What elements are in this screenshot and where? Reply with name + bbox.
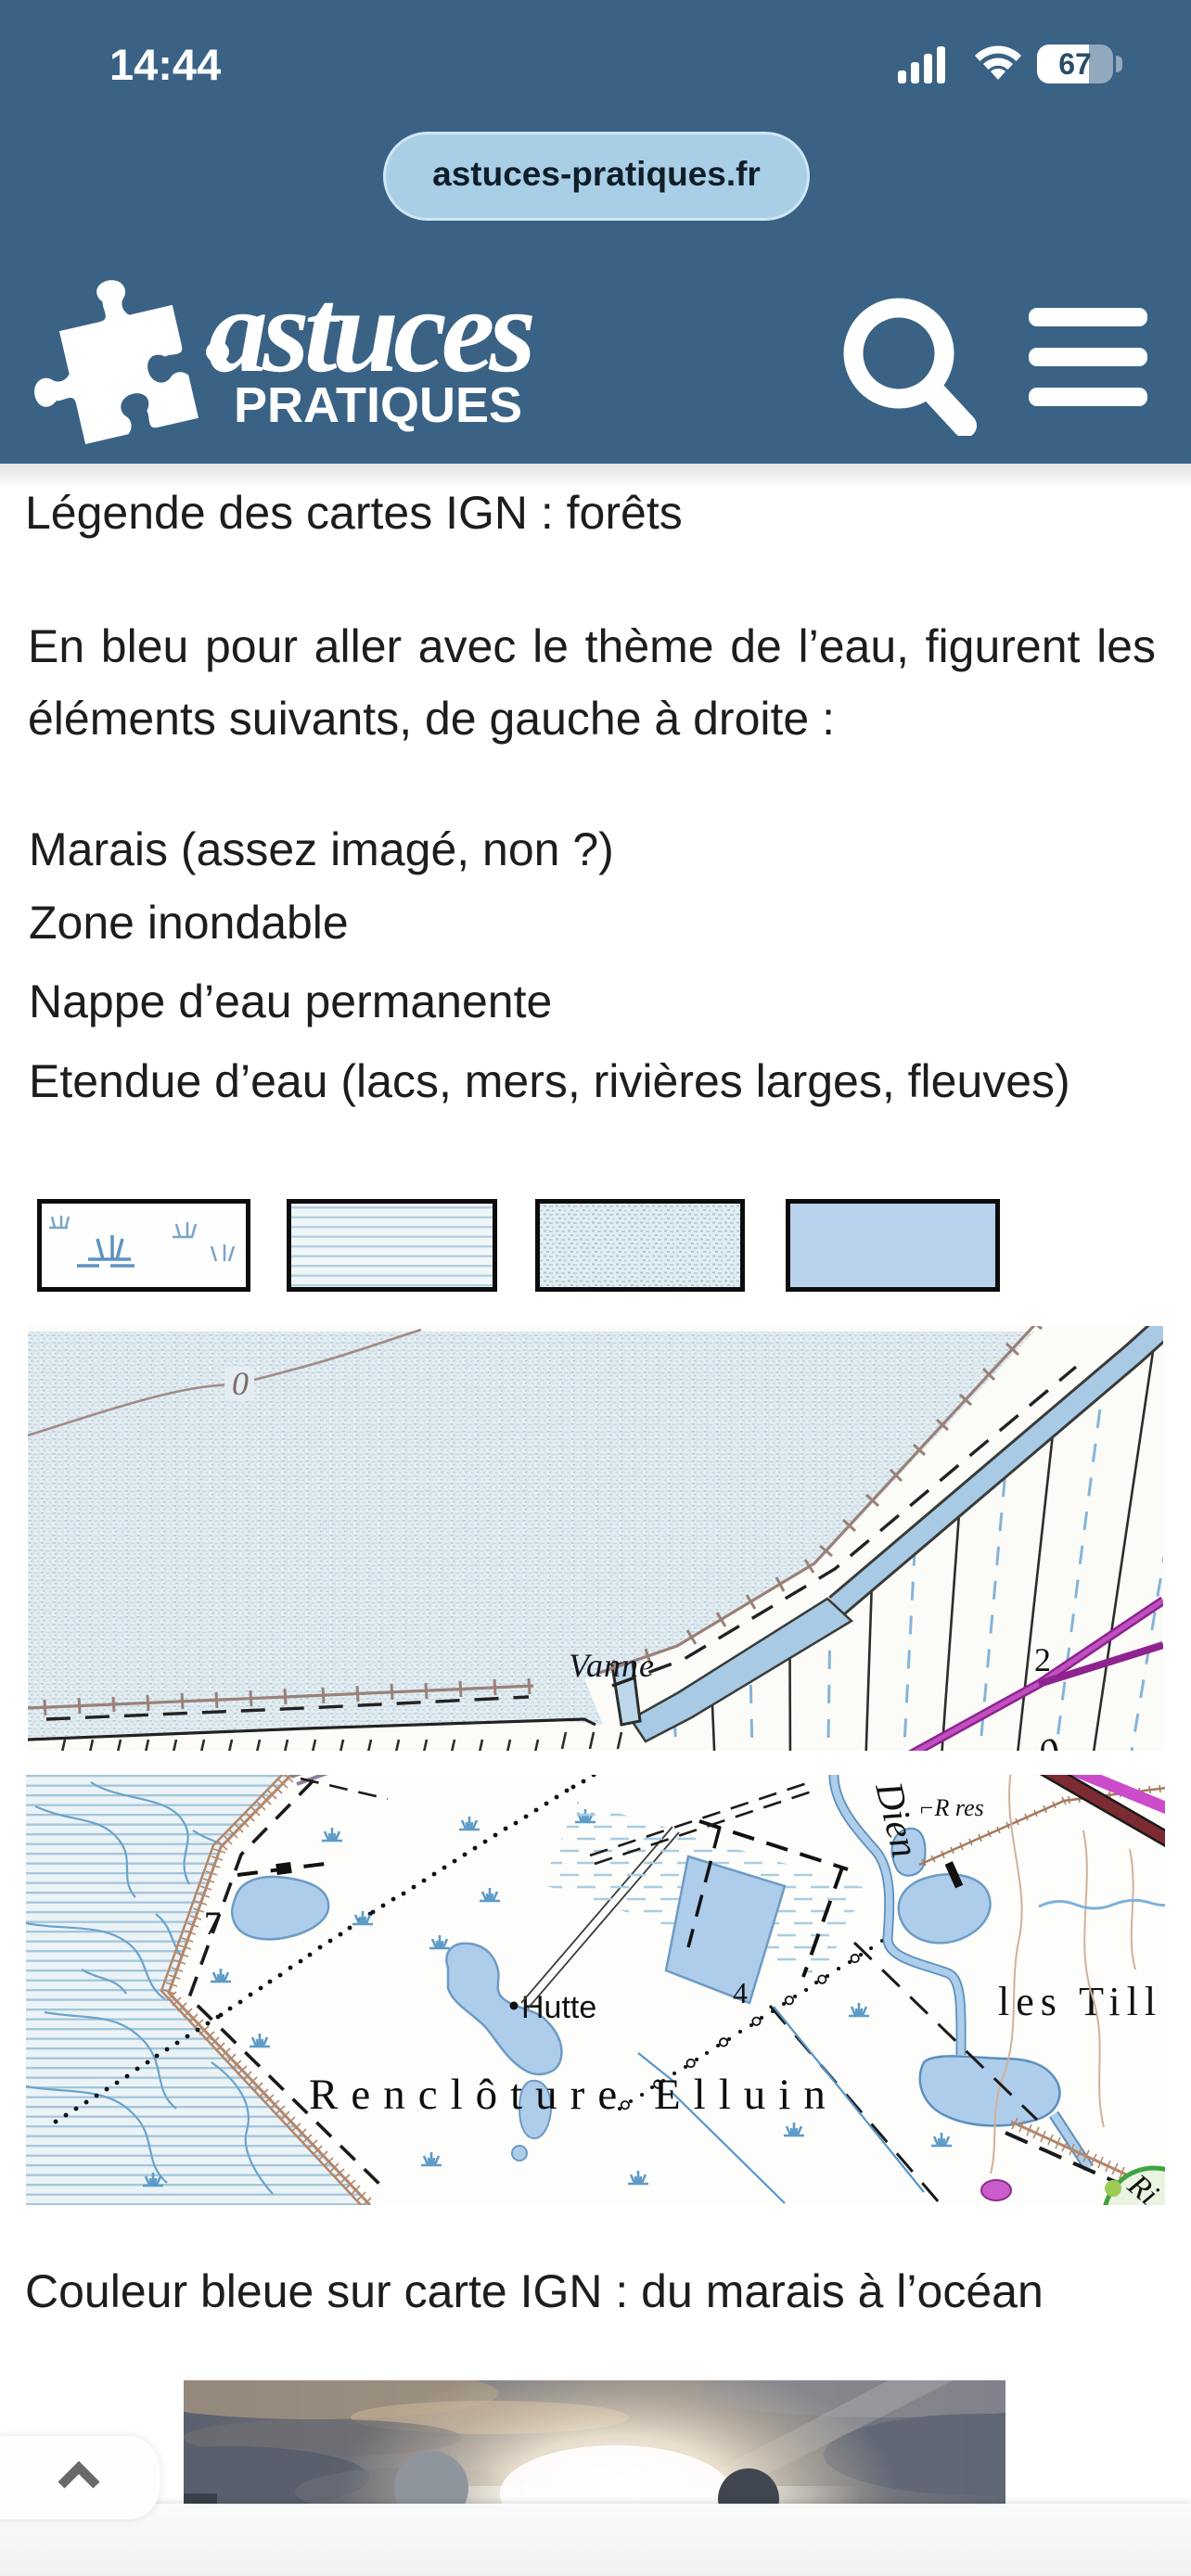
svg-text:7: 7 — [204, 1905, 221, 1942]
svg-text:4: 4 — [733, 1976, 748, 2009]
svg-text:Hutte: Hutte — [521, 1990, 596, 2025]
svg-text:0: 0 — [232, 1365, 249, 1402]
svg-text:Renclôture Elluin: Renclôture Elluin — [309, 2071, 839, 2119]
svg-text:⌐R res: ⌐R res — [918, 1794, 984, 1821]
svg-text:Vanne: Vanne — [569, 1647, 655, 1684]
svg-text:les Till: les Till — [998, 1979, 1162, 2024]
